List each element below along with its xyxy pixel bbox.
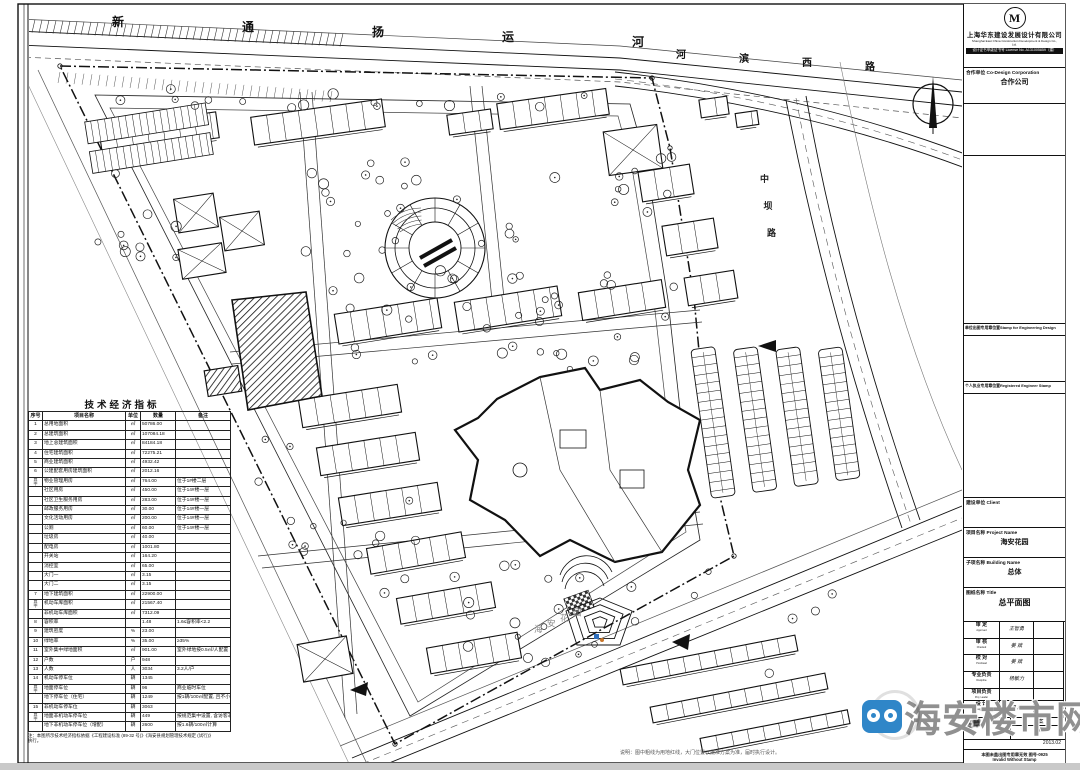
- table-cell: 21567.40: [141, 600, 176, 609]
- table-cell: 1001.80: [141, 543, 176, 552]
- table-cell: ㎡: [126, 534, 141, 543]
- table-cell: 14: [29, 675, 43, 684]
- project-label: 项目名称 Project Name: [964, 528, 1065, 537]
- sign-role-label: 审 定Approved: [964, 622, 1000, 639]
- road-top-label: 西: [802, 57, 812, 69]
- table-row: 地下停车位（住宅）辆1249按1辆/100㎡配置, 且不小于0.8辆/户: [29, 694, 231, 703]
- table-cell: ㎡: [126, 600, 141, 609]
- canal-label: 河: [631, 34, 644, 49]
- table-cell: ㎡: [126, 647, 141, 656]
- table-header: 单位: [126, 412, 141, 421]
- table-row: 开关站㎡164.20: [29, 553, 231, 562]
- table-cell: 总用地面积: [43, 421, 126, 430]
- table-cell: 3063: [141, 703, 176, 712]
- subproject-name: 总体: [964, 567, 1065, 577]
- table-cell: 1249: [141, 694, 176, 703]
- table-row: 地下非机动车停车位（增配）辆2600按1.6辆/100㎡计算: [29, 722, 231, 731]
- entrance-arrow-icon: [758, 340, 776, 352]
- table-cell: 6: [29, 468, 43, 477]
- table-cell: ㎡: [126, 553, 141, 562]
- table-cell: 7312.09: [141, 609, 176, 618]
- table-cell: [176, 421, 231, 430]
- table-cell: 7: [29, 590, 43, 599]
- table-cell: 764.00: [141, 477, 176, 486]
- table-row: 邮政服务用房㎡30.00位于14#楼一层: [29, 506, 231, 515]
- project-section: 项目名称 Project Name 海安花园: [964, 528, 1065, 558]
- table-row: 公厕㎡60.00位于14#楼一层: [29, 524, 231, 533]
- building-footprint: [426, 632, 522, 676]
- sheet-title: 总平面图: [964, 597, 1065, 608]
- table-cell: [126, 618, 141, 627]
- table-cell: 户数: [43, 656, 126, 665]
- table-header: 项目名称: [43, 412, 126, 421]
- table-row: 6公建配套用房建筑面积㎡2012.16: [29, 468, 231, 477]
- sheet-title-label: 图纸名称 Title: [964, 588, 1065, 597]
- table-cell: [176, 449, 231, 458]
- building-footprint: [650, 673, 828, 725]
- subproject-section: 子项名称 Building Name 总体: [964, 558, 1065, 588]
- table-cell: [29, 534, 43, 543]
- table-cell: 65.00: [141, 562, 176, 571]
- table-cell: 22900.00: [141, 590, 176, 599]
- unit-stamp-header: 单位出图专用章位置Stamp for Engineering Design: [964, 324, 1065, 336]
- entrance-arrow-icon: [350, 682, 368, 696]
- building-footprint: [316, 432, 420, 478]
- canal-label: 新: [112, 14, 124, 29]
- table-row: 其 中物业管理用房㎡764.00位于1#楼二层: [29, 477, 231, 486]
- table-cell: 公厕: [43, 524, 126, 533]
- table-cell: 50786.00: [141, 421, 176, 430]
- table-cell: 社区卫生服务用房: [43, 496, 126, 505]
- table-cell: 其 中: [29, 684, 43, 693]
- indicator-table-grid: 序号项目名称单位数量备注1总用地面积㎡50786.002总建筑面积㎡107084…: [28, 411, 231, 732]
- table-cell: 4: [29, 449, 43, 458]
- table-cell: 室外集中绿地面积: [43, 647, 126, 656]
- table-row: 2总建筑面积㎡107084.18: [29, 430, 231, 439]
- table-cell: [29, 487, 43, 496]
- table-cell: [29, 515, 43, 524]
- building-footprint: [178, 243, 226, 280]
- table-cell: 12: [29, 656, 43, 665]
- table-cell: 3.15: [141, 581, 176, 590]
- indicator-table-footnote: 注：本图所示技术经济指标依据《工程建设标准 (89-32 号)》《海安县规划管理…: [28, 733, 216, 744]
- table-cell: 1345: [141, 675, 176, 684]
- table-cell: 其 中: [29, 600, 43, 609]
- table-cell: ㎡: [126, 524, 141, 533]
- north-arrow-icon: [913, 76, 953, 134]
- plan-note: 说明：图中粗线为用地红线，大门位置以批准方案为准，届时执行设计。: [620, 749, 780, 756]
- watermark-text: 海安楼市网: [904, 689, 1080, 743]
- table-cell: 位于14#楼一层: [176, 524, 231, 533]
- table-row: 1总用地面积㎡50786.00: [29, 421, 231, 430]
- table-cell: 按1.6辆/100㎡计算: [176, 722, 231, 731]
- table-cell: 商业建筑面积: [43, 459, 126, 468]
- table-row: 5商业建筑面积㎡4932.42: [29, 459, 231, 468]
- table-cell: [176, 656, 231, 665]
- road-top-label: 滨: [739, 52, 749, 65]
- road-right-label: 路: [767, 227, 777, 238]
- table-cell: 3.2人/户: [176, 665, 231, 674]
- table-cell: 地下停车位（住宅）: [43, 694, 126, 703]
- table-cell: 人数: [43, 665, 126, 674]
- table-cell: 164.20: [141, 553, 176, 562]
- table-cell: 283.00: [141, 496, 176, 505]
- company-logo-icon: M: [1004, 7, 1026, 29]
- table-cell: 消控室: [43, 562, 126, 571]
- table-cell: ㎡: [126, 430, 141, 439]
- table-cell: ㎡: [126, 449, 141, 458]
- table-header: 序号: [29, 412, 43, 421]
- road-top-label: 路: [865, 60, 876, 73]
- sign-blank: [1034, 639, 1064, 656]
- table-cell: 邮政服务用房: [43, 506, 126, 515]
- table-cell: 垃圾房: [43, 534, 126, 543]
- adjacent-plot-label: 花: [560, 613, 569, 623]
- company-name: 上海华东建设发展设计有限公司: [964, 30, 1065, 39]
- building-footprint: [497, 88, 610, 132]
- table-row: 7地下建筑面积㎡22900.00: [29, 590, 231, 599]
- sign-name: 姜 斌: [1000, 639, 1034, 656]
- project-name: 海安花园: [964, 537, 1065, 547]
- table-row: 其 中地面非机动车停车位辆449按规范集中设置, 含访客非机动车位: [29, 713, 231, 722]
- table-cell: 社区用房: [43, 487, 126, 496]
- table-cell: 11: [29, 647, 43, 656]
- table-cell: 位于14#楼一层: [176, 506, 231, 515]
- table-header: 数量: [141, 412, 176, 421]
- table-cell: ㎡: [126, 477, 141, 486]
- table-cell: 位于14#楼一层: [176, 515, 231, 524]
- table-cell: 地面非机动车停车位: [43, 713, 126, 722]
- table-cell: 辆: [126, 684, 141, 693]
- table-cell: 35.00: [141, 637, 176, 646]
- table-cell: [29, 524, 43, 533]
- table-cell: ㎡: [126, 590, 141, 599]
- building-footprint: [174, 193, 219, 233]
- table-cell: [29, 562, 43, 571]
- sign-role-label: 审 核Checked: [964, 639, 1000, 656]
- table-cell: [29, 506, 43, 515]
- table-cell: ㎡: [126, 459, 141, 468]
- table-cell: [29, 722, 43, 731]
- table-cell: 449: [141, 713, 176, 722]
- table-cell: [29, 553, 43, 562]
- table-cell: 72275.21: [141, 449, 176, 458]
- table-cell: 2012.16: [141, 468, 176, 477]
- table-cell: 位于14#楼一层: [176, 496, 231, 505]
- table-row: 11室外集中绿地面积㎡901.00室外绿地按0.5㎡/人配置: [29, 647, 231, 656]
- table-cell: 8: [29, 618, 43, 627]
- table-cell: [176, 553, 231, 562]
- table-cell: 绿地率: [43, 637, 126, 646]
- table-cell: [29, 496, 43, 505]
- table-cell: [29, 694, 43, 703]
- table-row: 配电房㎡1001.80: [29, 543, 231, 552]
- table-row: 非机动车库面积㎡7312.09: [29, 609, 231, 618]
- table-cell: 200.00: [141, 515, 176, 524]
- table-cell: 23.00: [141, 628, 176, 637]
- table-cell: 地下建筑面积: [43, 590, 126, 599]
- table-cell: [29, 581, 43, 590]
- table-cell: ㎡: [126, 571, 141, 580]
- table-cell: 107084.18: [141, 430, 176, 439]
- table-cell: 容积率: [43, 618, 126, 627]
- table-row: 8容积率1.481.6≤容积率<2.2: [29, 618, 231, 627]
- table-cell: 3: [29, 440, 43, 449]
- table-row: 13人数人30343.2人/户: [29, 665, 231, 674]
- table-row: 3地上总建筑面积㎡84184.18: [29, 440, 231, 449]
- table-cell: [176, 703, 231, 712]
- gate-marker-icon: [594, 634, 599, 639]
- table-cell: [176, 609, 231, 618]
- unit-stamp-area: [964, 336, 1065, 382]
- table-cell: 2: [29, 430, 43, 439]
- bottom-gray-strip: [0, 763, 1080, 770]
- table-cell: 非机动车停车位: [43, 703, 126, 712]
- building-footprint: [578, 280, 666, 323]
- table-cell: 文化活动用房: [43, 515, 126, 524]
- table-cell: [176, 468, 231, 477]
- table-row: 垃圾房㎡40.00: [29, 534, 231, 543]
- building-footprint: [700, 710, 850, 755]
- table-cell: [176, 440, 231, 449]
- table-cell: 开关站: [43, 553, 126, 562]
- table-cell: 大门一: [43, 571, 126, 580]
- table-row: 15非机动车停车位辆3063: [29, 703, 231, 712]
- table-cell: %: [126, 628, 141, 637]
- sign-blank: [1034, 655, 1064, 672]
- table-cell: ㎡: [126, 562, 141, 571]
- table-cell: 4932.42: [141, 459, 176, 468]
- table-row: 文化活动用房㎡200.00位于14#楼一层: [29, 515, 231, 524]
- table-cell: 450.00: [141, 487, 176, 496]
- table-cell: ㎡: [126, 515, 141, 524]
- adjacent-plot-label: 海: [534, 624, 543, 634]
- table-cell: 辆: [126, 675, 141, 684]
- road-right-label: 坝: [764, 200, 773, 211]
- table-cell: 机动车停车位: [43, 675, 126, 684]
- table-cell: 户: [126, 656, 141, 665]
- building-footprint: [684, 270, 738, 308]
- road-right-label: 中: [760, 173, 769, 184]
- company-name-en: Shanghai East China Construction Develop…: [969, 39, 1060, 46]
- building-footprint: [662, 218, 718, 258]
- table-cell: 配电房: [43, 543, 126, 552]
- watermark: 海安楼市网: [862, 686, 1080, 746]
- table-cell: ≥35%: [176, 637, 231, 646]
- table-cell: [29, 571, 43, 580]
- table-cell: ㎡: [126, 496, 141, 505]
- table-cell: [176, 628, 231, 637]
- sheet-title-section: 图纸名称 Title 总平面图: [964, 588, 1065, 622]
- table-cell: 其 中: [29, 477, 43, 486]
- partner-section: 合作单位 Co-Design Corporation 合作公司: [964, 68, 1065, 104]
- title-block: M 上海华东建设发展设计有限公司 Shanghai East China Con…: [963, 4, 1065, 763]
- table-cell: 1.6≤容积率<2.2: [176, 618, 231, 627]
- building-footprint: [297, 636, 353, 682]
- table-cell: 1: [29, 421, 43, 430]
- table-header: 备注: [176, 412, 231, 421]
- building-footprint: [396, 582, 495, 627]
- sign-name: 王智勇: [1000, 622, 1034, 639]
- table-cell: %: [126, 637, 141, 646]
- table-cell: ㎡: [126, 421, 141, 430]
- table-cell: 位于14#楼一层: [176, 487, 231, 496]
- building-footprint: [620, 635, 798, 687]
- table-cell: 84184.18: [141, 440, 176, 449]
- canal-label: 通: [242, 19, 254, 34]
- company-section: M 上海华东建设发展设计有限公司 Shanghai East China Con…: [964, 4, 1065, 68]
- canal-label: 运: [502, 30, 514, 44]
- table-cell: 30.00: [141, 506, 176, 515]
- parking-rows: [691, 329, 860, 498]
- table-cell: 13: [29, 665, 43, 674]
- watermark-logo-icon: [862, 700, 902, 733]
- table-cell: 3.15: [141, 571, 176, 580]
- table-row: 其 中机动车库面积㎡21567.40: [29, 600, 231, 609]
- table-cell: 地下非机动车停车位（增配）: [43, 722, 126, 731]
- table-cell: 地上总建筑面积: [43, 440, 126, 449]
- building-footprint: [699, 96, 730, 120]
- entrance-arrow-icon: [672, 634, 690, 650]
- personal-stamp-header: 个人执业专用章位置Registered Engineer Stamp: [964, 382, 1065, 394]
- indicator-table: 技术经济指标 序号项目名称单位数量备注1总用地面积㎡50786.002总建筑面积…: [28, 397, 216, 744]
- table-row: 消控室㎡65.00: [29, 562, 231, 571]
- drawing-sheet: 新通扬运河河滨西路中坝路海安花园说明：图中粗线为用地红线，大门位置以批准方案为准…: [0, 0, 1080, 770]
- table-row: 12户数户948: [29, 656, 231, 665]
- table-cell: 15: [29, 703, 43, 712]
- blank-box-1: [964, 104, 1065, 156]
- table-cell: 辆: [126, 694, 141, 703]
- building-footprint: [338, 482, 442, 528]
- table-cell: 3034: [141, 665, 176, 674]
- canal-label: 扬: [372, 24, 384, 39]
- table-row: 社区卫生服务用房㎡283.00位于14#楼一层: [29, 496, 231, 505]
- table-cell: [176, 581, 231, 590]
- table-cell: [176, 430, 231, 439]
- table-cell: [176, 459, 231, 468]
- table-row: 大门一㎡3.15: [29, 571, 231, 580]
- table-cell: [176, 590, 231, 599]
- blank-box-2: [964, 156, 1065, 324]
- indicator-table-title: 技术经济指标: [28, 397, 216, 411]
- table-cell: [176, 675, 231, 684]
- table-cell: 10: [29, 637, 43, 646]
- road-top-label: 河: [676, 49, 686, 61]
- client-section: 建设单位 Client: [964, 498, 1065, 528]
- building-footprint: [735, 111, 759, 130]
- table-cell: ㎡: [126, 609, 141, 618]
- personal-stamp-area: [964, 394, 1065, 498]
- table-cell: 其 中: [29, 713, 43, 722]
- table-cell: 9: [29, 628, 43, 637]
- table-cell: 非机动车库面积: [43, 609, 126, 618]
- table-cell: 2600: [141, 722, 176, 731]
- partner-label: 合作单位 Co-Design Corporation: [964, 68, 1065, 77]
- building-footprint: [220, 211, 265, 251]
- sign-blank: [1034, 622, 1064, 639]
- table-cell: [176, 534, 231, 543]
- table-cell: ㎡: [126, 506, 141, 515]
- table-cell: 辆: [126, 722, 141, 731]
- table-cell: ㎡: [126, 581, 141, 590]
- table-cell: 96: [141, 684, 176, 693]
- invalid-note: 本图未盖出图专用章无效 图号-0925 Invalid Without Stam…: [964, 750, 1065, 763]
- table-cell: 辆: [126, 703, 141, 712]
- client-label: 建设单位 Client: [964, 498, 1065, 507]
- table-cell: 辆: [126, 713, 141, 722]
- table-cell: ㎡: [126, 468, 141, 477]
- table-cell: 建筑密度: [43, 628, 126, 637]
- building-footprint: [366, 532, 465, 577]
- table-cell: 商业临时车位: [176, 684, 231, 693]
- table-cell: 公建配套用房建筑面积: [43, 468, 126, 477]
- table-row: 10绿地率%35.00≥35%: [29, 637, 231, 646]
- adjacent-plot-label: 安: [547, 619, 556, 629]
- table-cell: 大门二: [43, 581, 126, 590]
- table-row: 14机动车停车位辆1345: [29, 675, 231, 684]
- table-cell: 室外绿地按0.5㎡/人配置: [176, 647, 231, 656]
- table-cell: 按1辆/100㎡配置, 且不小于0.8辆/户: [176, 694, 231, 703]
- partner-name: 合作公司: [964, 77, 1065, 87]
- table-cell: 948: [141, 656, 176, 665]
- sign-name: 姜 斌: [1000, 655, 1034, 672]
- table-cell: ㎡: [126, 543, 141, 552]
- table-cell: 地面停车位: [43, 684, 126, 693]
- table-cell: 住宅建筑面积: [43, 449, 126, 458]
- adjacent-plot-label: 园: [573, 608, 582, 618]
- table-cell: 901.00: [141, 647, 176, 656]
- table-cell: 60.00: [141, 524, 176, 533]
- table-cell: 40.00: [141, 534, 176, 543]
- table-cell: [176, 543, 231, 552]
- table-cell: 1.48: [141, 618, 176, 627]
- company-license: 设计证书甲级证书号 License No. A131005859（建）: [966, 48, 1063, 54]
- table-cell: [29, 609, 43, 618]
- table-cell: ㎡: [126, 440, 141, 449]
- table-cell: [176, 571, 231, 580]
- table-row: 社区用房㎡450.00位于14#楼一层: [29, 487, 231, 496]
- table-cell: ㎡: [126, 487, 141, 496]
- sign-role-label: 校 对Proofread: [964, 655, 1000, 672]
- table-cell: 位于1#楼二层: [176, 477, 231, 486]
- table-cell: 人: [126, 665, 141, 674]
- table-cell: 5: [29, 459, 43, 468]
- table-row: 大门二㎡3.15: [29, 581, 231, 590]
- table-row: 9建筑密度%23.00: [29, 628, 231, 637]
- table-row: 其 中地面停车位辆96商业临时车位: [29, 684, 231, 693]
- table-cell: [176, 562, 231, 571]
- building-footprint: [603, 124, 663, 175]
- table-cell: 机动车库面积: [43, 600, 126, 609]
- table-cell: [29, 543, 43, 552]
- central-plaza: [385, 198, 485, 298]
- table-cell: 总建筑面积: [43, 430, 126, 439]
- building-footprint: [251, 99, 386, 148]
- table-row: 4住宅建筑面积㎡72275.21: [29, 449, 231, 458]
- table-cell: 物业管理用房: [43, 477, 126, 486]
- table-cell: 按规范集中设置, 含访客非机动车位: [176, 713, 231, 722]
- table-cell: [176, 600, 231, 609]
- subproject-label: 子项名称 Building Name: [964, 558, 1065, 567]
